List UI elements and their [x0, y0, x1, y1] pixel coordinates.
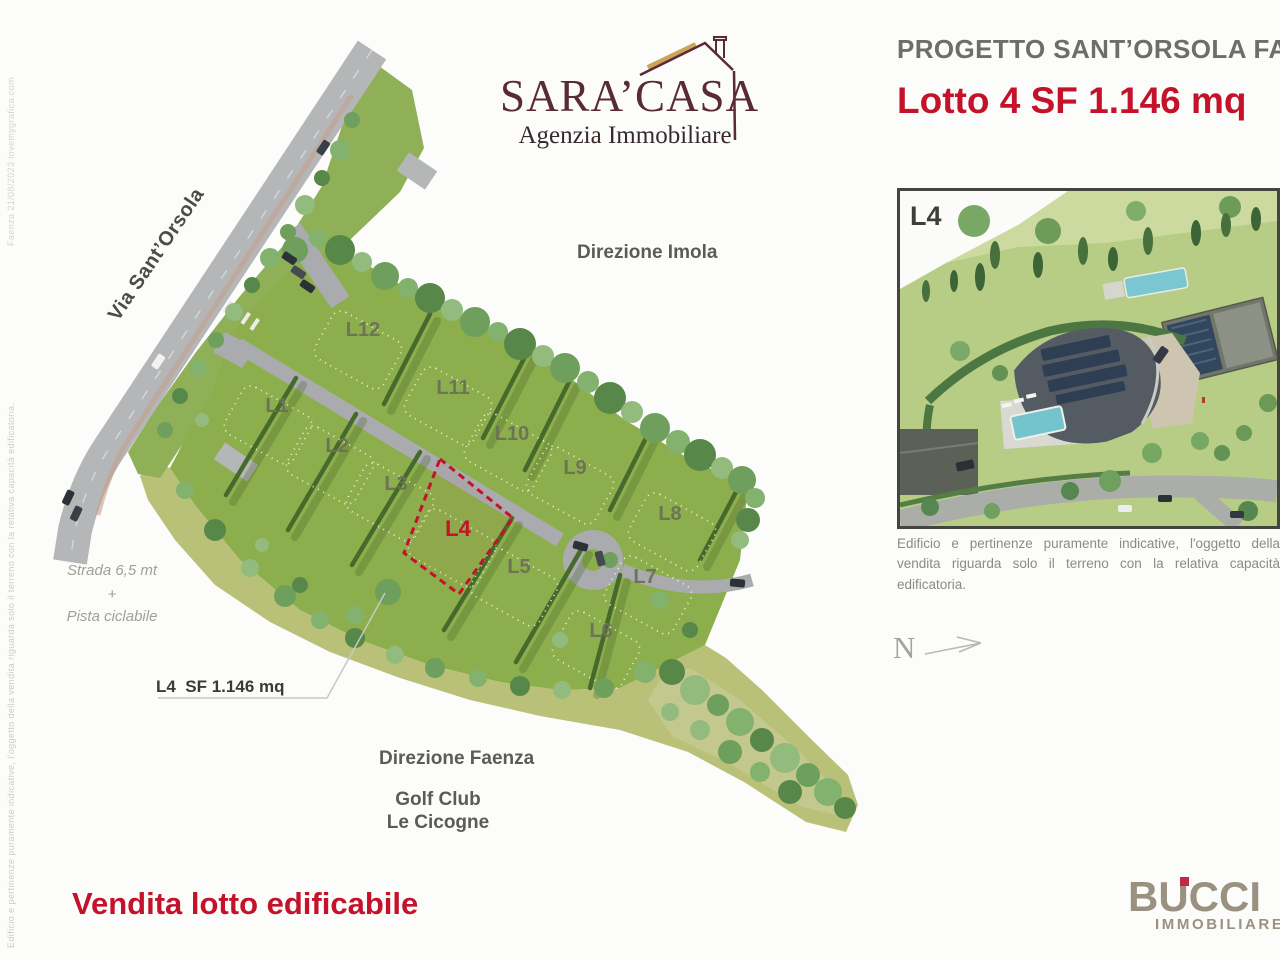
lot-label-l8: L8 — [658, 503, 681, 525]
render-illustration: L4 — [900, 191, 1277, 526]
lot-label-l12: L12 — [346, 319, 380, 341]
direction-faenza-label: Direzione Faenza — [379, 748, 535, 769]
golf-club-label-1: Golf Club — [395, 789, 480, 810]
lot-label-l7: L7 — [633, 566, 656, 588]
bucci-logo: BUCCI IMMOBILIARE — [1128, 876, 1280, 933]
lot-label-l6: L6 — [589, 620, 612, 642]
lot-label-l3: L3 — [384, 473, 407, 495]
lot-label-l4: L4 — [445, 516, 471, 541]
road-note-plus: + — [108, 586, 117, 603]
road-note-line1: Strada 6,5 mt — [67, 562, 158, 579]
lot-label-l9: L9 — [563, 457, 586, 479]
golf-club-label-2: Le Cicogne — [387, 812, 489, 833]
lot-label-l1: L1 — [265, 395, 288, 417]
lot-label-l10: L10 — [495, 423, 529, 445]
lot-label-l11: L11 — [436, 377, 469, 399]
lot-title: Lotto 4 SF 1.146 mq — [897, 80, 1280, 122]
sale-headline: Vendita lotto edificabile — [72, 886, 418, 922]
lot4-render-inset: L4 — [897, 188, 1280, 529]
lot4-callout-text: L4 SF 1.146 mq — [156, 677, 285, 696]
project-title: PROGETTO SANT’ORSOLA FAENZA — [897, 34, 1280, 65]
lot-label-l2: L2 — [325, 435, 348, 457]
bucci-brand-name: BUCCI — [1128, 876, 1280, 918]
master-plan-map: L1 L2 L3 L4 L5 L6 L7 L8 L9 L10 L11 L12 V… — [0, 0, 920, 960]
bucci-red-dot-icon — [1180, 877, 1189, 886]
flyer-page: { "watermarks": { "top_vertical": "Faenz… — [0, 0, 1280, 960]
road-note-line2: Pista ciclabile — [67, 608, 158, 625]
direction-imola-label: Direzione Imola — [577, 242, 718, 263]
inset-caption: Edificio e pertinenze puramente indicati… — [897, 534, 1280, 595]
lot-label-l5: L5 — [507, 556, 530, 578]
